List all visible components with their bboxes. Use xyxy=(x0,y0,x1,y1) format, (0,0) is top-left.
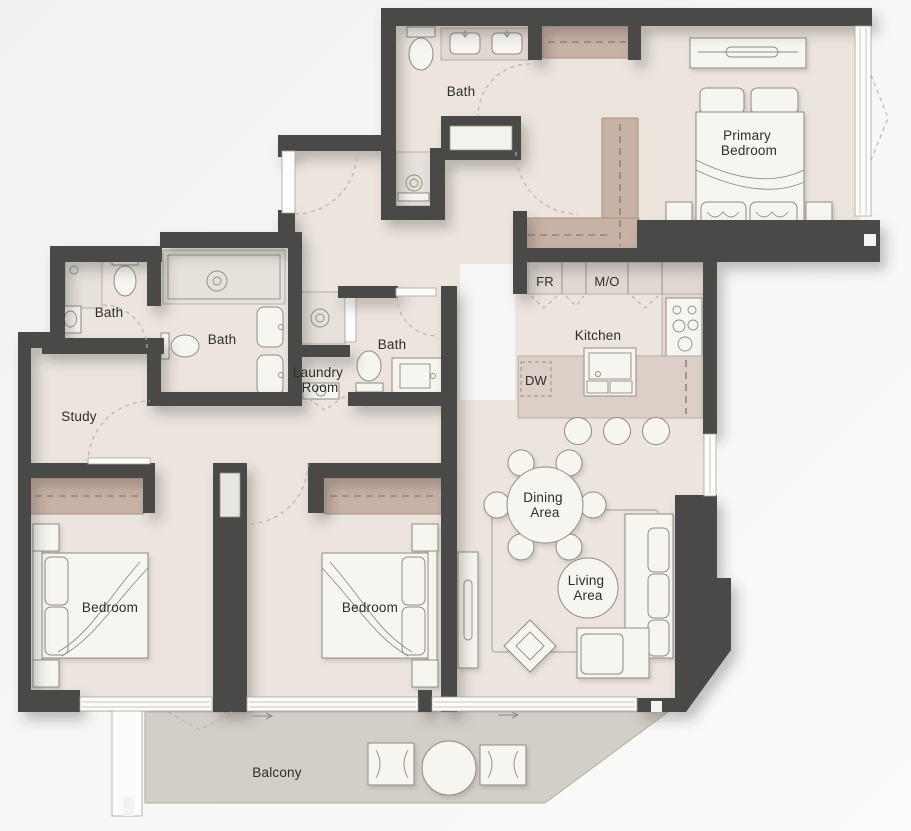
label-mo: M/O xyxy=(594,274,619,289)
label-fr: FR xyxy=(536,274,554,289)
shower xyxy=(163,250,285,304)
dresser xyxy=(690,38,806,68)
label-kitchen: Kitchen xyxy=(575,328,621,343)
primary-window xyxy=(855,26,888,216)
pillow xyxy=(402,557,425,605)
vanity xyxy=(392,358,448,394)
label-bath-mid: Bath xyxy=(208,332,237,347)
kitchen-window xyxy=(704,434,716,496)
label-bath-left: Bath xyxy=(95,305,124,320)
pillow xyxy=(45,557,68,605)
label-study: Study xyxy=(61,409,97,424)
bedroom-right-wardrobe xyxy=(325,478,443,514)
bedroom-left-door-leaf xyxy=(88,458,150,464)
vanity xyxy=(441,28,531,60)
bar-stools xyxy=(565,418,670,445)
console xyxy=(458,552,478,668)
toilet xyxy=(161,333,199,359)
balcony-chair xyxy=(368,743,414,785)
headboard xyxy=(33,548,42,666)
toilet xyxy=(356,351,383,392)
corridor-wardrobe xyxy=(543,26,631,58)
shower xyxy=(295,292,345,344)
label-dw: DW xyxy=(525,373,548,388)
label-bedroom-left: Bedroom xyxy=(82,600,138,615)
bedroom-left-wardrobe xyxy=(30,478,144,514)
label-bath-top: Bath xyxy=(447,84,476,99)
floor-plan: Bath Primary Bedroom FR M/O Kitchen DW B… xyxy=(0,0,911,831)
entry-door-leaf xyxy=(282,151,295,213)
balcony-chair xyxy=(480,745,526,785)
label-primary-bedroom: Primary Bedroom xyxy=(721,128,777,158)
cushion xyxy=(700,88,744,114)
cushion xyxy=(751,88,798,114)
label-living-area: Living Area xyxy=(568,573,608,603)
label-bedroom-right: Bedroom xyxy=(342,600,398,615)
nightstand xyxy=(412,524,438,551)
toilet xyxy=(407,27,435,70)
headboard xyxy=(428,548,437,666)
island-sink xyxy=(584,348,636,396)
label-balcony: Balcony xyxy=(252,765,301,780)
nightstand xyxy=(412,660,438,687)
bath-inner-door-leaf xyxy=(396,288,436,296)
nightstand xyxy=(33,660,59,687)
cooktop xyxy=(666,298,702,356)
nightstand xyxy=(33,524,59,551)
label-bath-inner: Bath xyxy=(378,337,407,352)
shower xyxy=(396,152,431,206)
balcony-table xyxy=(422,741,476,795)
shower xyxy=(65,258,102,308)
